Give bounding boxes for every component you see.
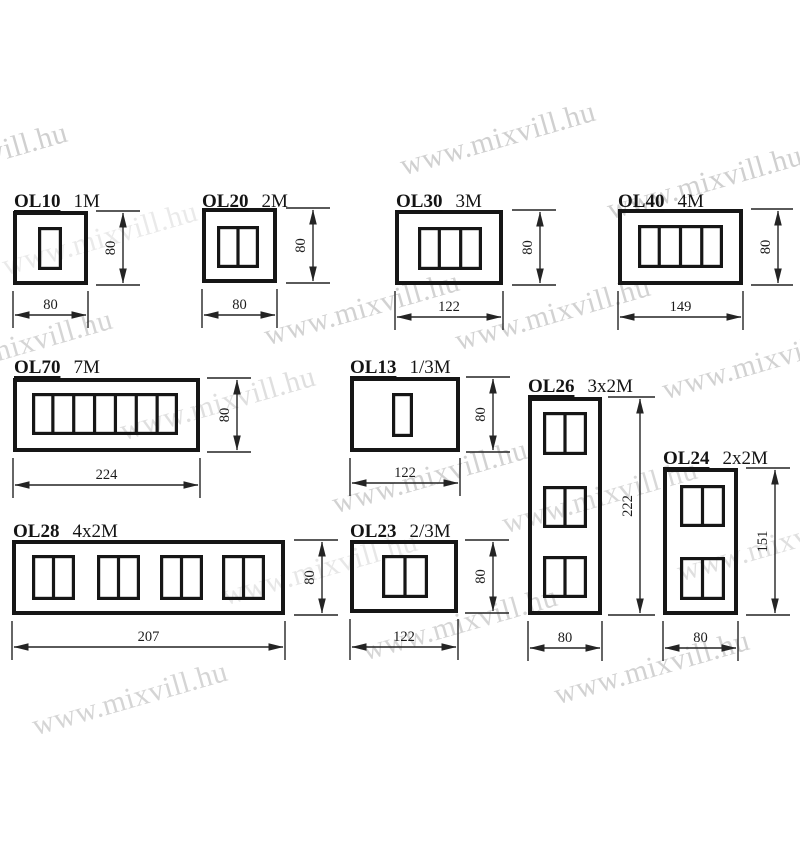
height-dimension-value: 222 — [620, 495, 636, 517]
width-dimension-value: 149 — [670, 299, 692, 315]
product-ol26: 22280 — [528, 397, 655, 661]
frame-outline — [665, 470, 736, 613]
product-ol20: 8080 — [202, 208, 330, 328]
product-ol30: 80122 — [395, 210, 556, 330]
frame-outline — [15, 380, 198, 450]
dimension-drawing: 8080808080122801498022480122222801518080… — [0, 0, 800, 850]
product-ol40: 80149 — [618, 209, 793, 330]
module-group-outline — [420, 229, 481, 269]
module-group-outline — [40, 229, 61, 269]
frame-outline — [397, 212, 501, 283]
height-dimension-value: 80 — [217, 408, 233, 423]
product-ol10: 8080 — [13, 211, 140, 328]
height-dimension-value: 80 — [758, 240, 774, 255]
product-ol24: 15180 — [663, 468, 790, 661]
width-dimension-value: 80 — [43, 297, 58, 313]
height-dimension-value: 151 — [755, 531, 771, 553]
product-ol23: 80122 — [350, 540, 509, 660]
width-dimension-value: 224 — [96, 467, 119, 483]
product-ol13: 80122 — [350, 377, 510, 496]
width-dimension-value: 80 — [693, 630, 708, 646]
width-dimension-value: 80 — [558, 630, 573, 646]
height-dimension-value: 80 — [473, 569, 489, 584]
product-ol28: 80207 — [12, 540, 338, 660]
width-dimension-value: 122 — [394, 465, 416, 481]
height-dimension-value: 80 — [520, 240, 536, 255]
product-ol70: 80224 — [13, 378, 251, 498]
height-dimension-value: 80 — [302, 570, 318, 585]
width-dimension-value: 122 — [393, 629, 415, 645]
height-dimension-value: 80 — [103, 241, 119, 256]
height-dimension-value: 80 — [293, 238, 309, 253]
module-group-outline — [394, 395, 412, 436]
diagram-canvas: www.mixvill.huwww.mixvill.huwww.mixvill.… — [0, 0, 800, 850]
height-dimension-value: 80 — [473, 407, 489, 422]
frame-outline — [15, 213, 86, 283]
width-dimension-value: 207 — [138, 629, 160, 645]
module-group-outline — [34, 395, 177, 434]
width-dimension-value: 80 — [232, 297, 247, 313]
width-dimension-value: 122 — [438, 299, 460, 315]
frame-outline — [352, 379, 458, 450]
